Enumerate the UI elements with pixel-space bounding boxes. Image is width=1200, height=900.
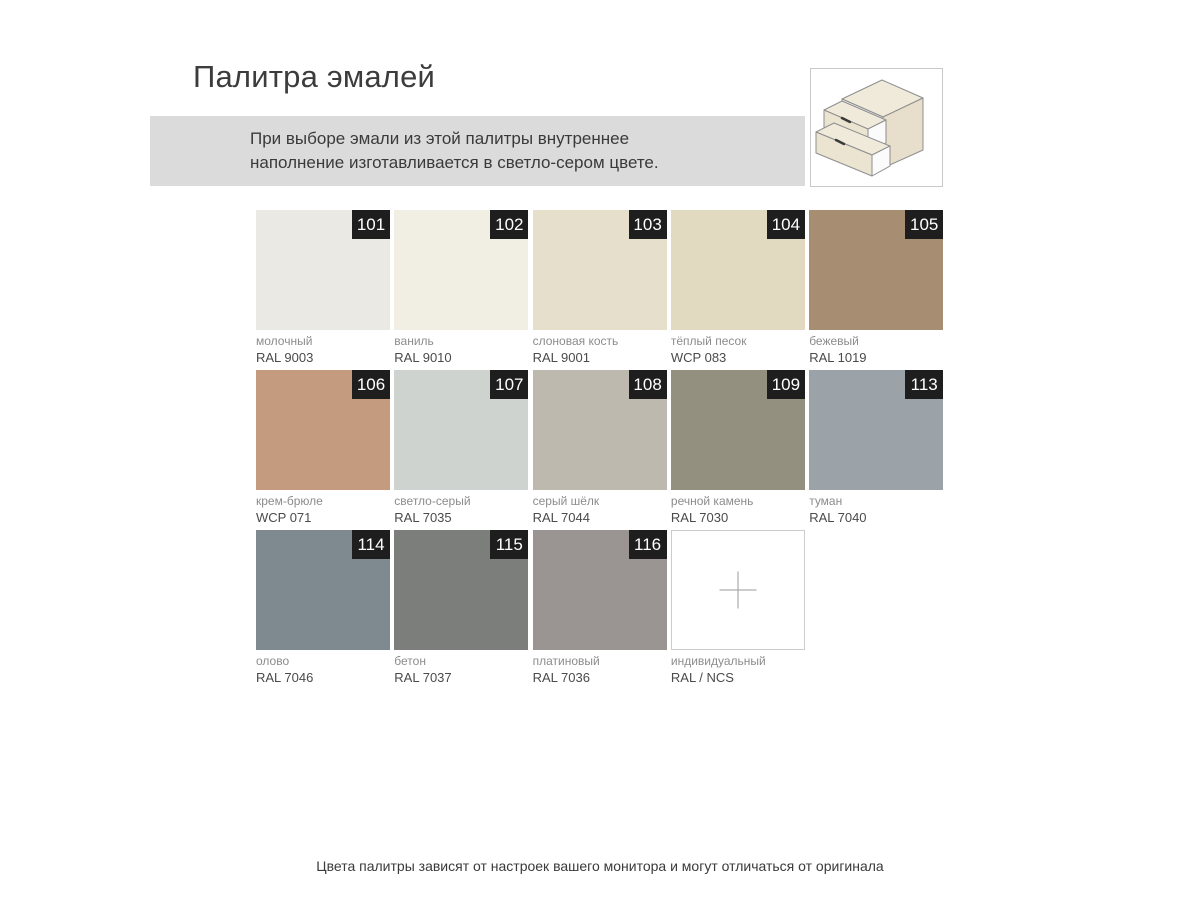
swatch-cell: 101 молочный RAL 9003 xyxy=(256,210,390,363)
page-title: Палитра эмалей xyxy=(193,57,435,97)
swatch-number-badge: 109 xyxy=(767,370,805,399)
swatch-cell: 103 слоновая кость RAL 9001 xyxy=(533,210,667,363)
swatch-name: бетон xyxy=(394,655,528,668)
swatch-number-badge: 116 xyxy=(629,530,667,559)
swatch-number-badge: 114 xyxy=(352,530,390,559)
swatch-code: WCP 071 xyxy=(256,510,390,525)
swatch-code: RAL 7030 xyxy=(671,510,805,525)
swatch-code: RAL 7044 xyxy=(533,510,667,525)
plus-icon xyxy=(719,572,756,609)
footer-disclaimer: Цвета палитры зависят от настроек вашего… xyxy=(0,858,1200,874)
color-swatch[interactable]: 106 xyxy=(256,370,390,490)
swatch-number-badge: 104 xyxy=(767,210,805,239)
color-swatch[interactable] xyxy=(671,530,805,650)
note-line-1: При выборе эмали из этой палитры внутрен… xyxy=(250,127,805,151)
swatch-cell: индивидуальный RAL / NCS xyxy=(671,530,805,683)
color-swatch[interactable]: 101 xyxy=(256,210,390,330)
swatch-cell: 114 олово RAL 7046 xyxy=(256,530,390,683)
swatch-name: туман xyxy=(809,495,943,508)
swatch-number-badge: 105 xyxy=(905,210,943,239)
swatch-name: индивидуальный xyxy=(671,655,805,668)
swatch-cell: 108 серый шёлк RAL 7044 xyxy=(533,370,667,523)
color-swatch[interactable]: 109 xyxy=(671,370,805,490)
swatch-name: платиновый xyxy=(533,655,667,668)
color-swatch[interactable]: 102 xyxy=(394,210,528,330)
swatch-name: речной камень xyxy=(671,495,805,508)
drawer-unit-icon xyxy=(810,66,943,190)
swatch-name: олово xyxy=(256,655,390,668)
swatch-number-badge: 113 xyxy=(905,370,943,399)
color-swatch[interactable]: 115 xyxy=(394,530,528,650)
swatch-code: RAL 9003 xyxy=(256,350,390,365)
swatch-number-badge: 107 xyxy=(490,370,528,399)
swatch-code: RAL 7037 xyxy=(394,670,528,685)
swatch-number-badge: 102 xyxy=(490,210,528,239)
swatch-cell: 115 бетон RAL 7037 xyxy=(394,530,528,683)
swatch-cell: 106 крем-брюле WCP 071 xyxy=(256,370,390,523)
swatch-cell: 107 светло-серый RAL 7035 xyxy=(394,370,528,523)
color-swatch[interactable]: 103 xyxy=(533,210,667,330)
swatch-number-badge: 115 xyxy=(490,530,528,559)
swatch-code: RAL / NCS xyxy=(671,670,805,685)
swatch-number-badge: 101 xyxy=(352,210,390,239)
note-banner: При выборе эмали из этой палитры внутрен… xyxy=(150,116,805,186)
drawer-unit-illustration-box xyxy=(810,68,943,187)
color-swatch[interactable]: 113 xyxy=(809,370,943,490)
swatch-number-badge: 103 xyxy=(629,210,667,239)
swatch-cell: 113 туман RAL 7040 xyxy=(809,370,943,523)
swatch-cell: 104 тёплый песок WCP 083 xyxy=(671,210,805,363)
swatch-name: крем-брюле xyxy=(256,495,390,508)
swatch-name: слоновая кость xyxy=(533,335,667,348)
swatch-cell: 109 речной камень RAL 7030 xyxy=(671,370,805,523)
color-swatch[interactable]: 114 xyxy=(256,530,390,650)
color-swatch[interactable]: 107 xyxy=(394,370,528,490)
swatch-code: RAL 9001 xyxy=(533,350,667,365)
swatch-code: RAL 7046 xyxy=(256,670,390,685)
swatch-name: тёплый песок xyxy=(671,335,805,348)
color-swatch[interactable]: 108 xyxy=(533,370,667,490)
swatch-code: RAL 1019 xyxy=(809,350,943,365)
swatch-number-badge: 108 xyxy=(629,370,667,399)
swatch-name: светло-серый xyxy=(394,495,528,508)
swatch-code: RAL 7040 xyxy=(809,510,943,525)
swatch-code: RAL 7035 xyxy=(394,510,528,525)
swatch-name: бежевый xyxy=(809,335,943,348)
swatch-code: RAL 7036 xyxy=(533,670,667,685)
swatch-cell: 116 платиновый RAL 7036 xyxy=(533,530,667,683)
swatch-code: RAL 9010 xyxy=(394,350,528,365)
enamel-palette-grid: 101 молочный RAL 9003 102 ваниль RAL 901… xyxy=(256,210,943,683)
swatch-cell: 105 бежевый RAL 1019 xyxy=(809,210,943,363)
swatch-name: ваниль xyxy=(394,335,528,348)
color-swatch[interactable]: 105 xyxy=(809,210,943,330)
note-line-2: наполнение изготавливается в светло-серо… xyxy=(250,151,805,175)
color-swatch[interactable]: 104 xyxy=(671,210,805,330)
swatch-code: WCP 083 xyxy=(671,350,805,365)
swatch-cell: 102 ваниль RAL 9010 xyxy=(394,210,528,363)
swatch-name: молочный xyxy=(256,335,390,348)
swatch-name: серый шёлк xyxy=(533,495,667,508)
swatch-number-badge: 106 xyxy=(352,370,390,399)
color-swatch[interactable]: 116 xyxy=(533,530,667,650)
